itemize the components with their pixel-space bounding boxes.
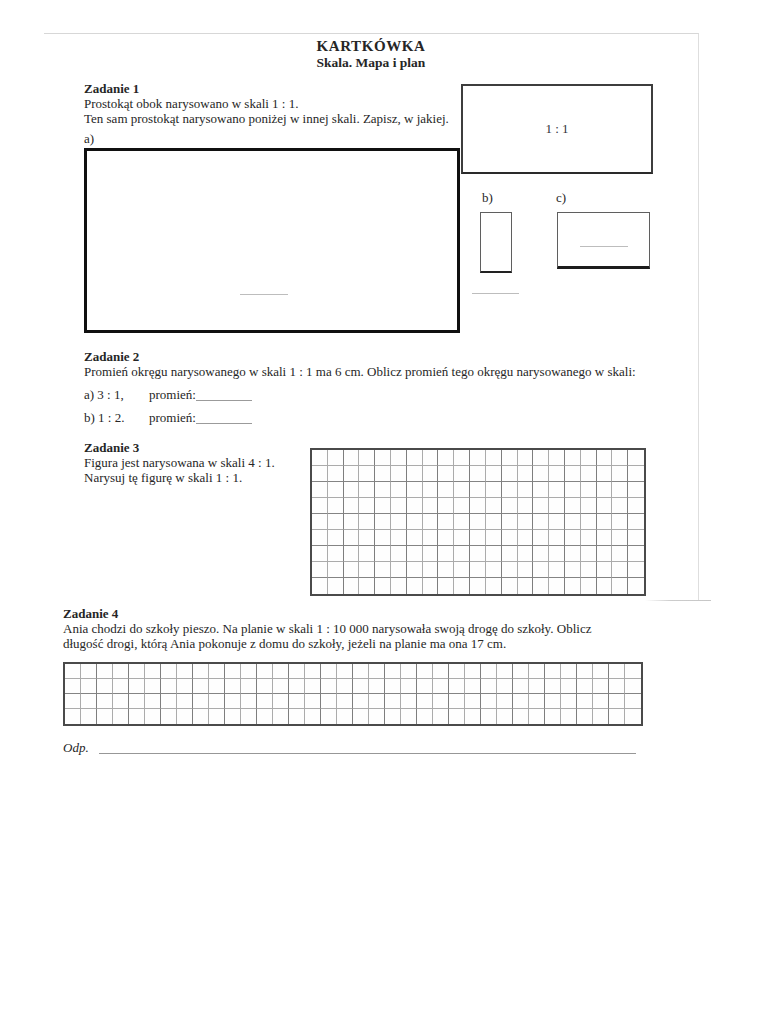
grid-cell	[518, 450, 534, 466]
grid-cell	[628, 482, 644, 498]
grid-cell	[438, 498, 454, 514]
grid-cell	[565, 482, 581, 498]
grid-cell	[533, 530, 549, 546]
page-border-bottom-segment	[645, 600, 711, 601]
task1-label-c: c)	[556, 190, 566, 205]
grid-cell	[593, 694, 609, 709]
grid-cell	[561, 694, 577, 709]
grid-cell	[454, 498, 470, 514]
grid-cell	[565, 514, 581, 530]
task2-intro: Promień okręgu narysowanego w skali 1 : …	[84, 364, 636, 379]
grid-cell	[161, 709, 177, 724]
task2-item-b-blank	[196, 423, 252, 424]
grid-cell	[545, 664, 561, 679]
grid-cell	[581, 530, 597, 546]
grid-cell	[161, 694, 177, 709]
grid-cell	[328, 482, 344, 498]
rectangle-c	[557, 212, 650, 269]
grid-cell	[518, 466, 534, 482]
grid-cell	[597, 578, 613, 594]
grid-cell	[497, 664, 513, 679]
grid-cell	[337, 679, 353, 694]
grid-cell	[305, 709, 321, 724]
grid-cell	[545, 694, 561, 709]
grid-cell	[97, 664, 113, 679]
grid-cell	[113, 664, 129, 679]
grid-cell	[454, 578, 470, 594]
grid-cell	[353, 694, 369, 709]
grid-cell	[470, 514, 486, 530]
grid-cell	[337, 664, 353, 679]
grid-cell	[129, 664, 145, 679]
grid-cell	[65, 679, 81, 694]
grid-cell	[321, 709, 337, 724]
grid-cell	[533, 578, 549, 594]
grid-cell	[145, 709, 161, 724]
grid-cell	[401, 694, 417, 709]
grid-cell	[470, 546, 486, 562]
grid-cell	[502, 482, 518, 498]
grid-cell	[513, 709, 529, 724]
grid-cell	[305, 679, 321, 694]
grid-cell	[449, 664, 465, 679]
grid-cell	[454, 562, 470, 578]
grid-cell	[502, 466, 518, 482]
grid-cell	[312, 466, 328, 482]
grid-cell	[328, 530, 344, 546]
grid-cell	[97, 679, 113, 694]
grid-cell	[502, 450, 518, 466]
grid-cell	[597, 466, 613, 482]
grid-cell	[533, 546, 549, 562]
grid-cell	[177, 709, 193, 724]
grid-cell	[625, 694, 641, 709]
grid-cell	[391, 466, 407, 482]
grid-cell	[312, 530, 328, 546]
grid-cell	[438, 530, 454, 546]
grid-cell	[449, 709, 465, 724]
grid-cell	[257, 679, 273, 694]
grid-cell	[533, 466, 549, 482]
grid-cell	[375, 482, 391, 498]
grid-cell	[145, 679, 161, 694]
grid-cell	[433, 694, 449, 709]
grid-cell	[470, 578, 486, 594]
page-subtitle: Skala. Mapa i plan	[44, 55, 698, 70]
grid-cell	[209, 709, 225, 724]
grid-cell	[65, 694, 81, 709]
grid-cell	[628, 562, 644, 578]
grid-cell	[344, 562, 360, 578]
grid-cell	[449, 679, 465, 694]
task2-item-a-blank	[196, 400, 252, 401]
grid-cell	[449, 694, 465, 709]
grid-cell	[359, 578, 375, 594]
grid-cell	[612, 482, 628, 498]
grid-cell	[549, 530, 565, 546]
grid-cell	[423, 530, 439, 546]
answer-line	[99, 753, 636, 754]
task4-heading: Zadanie 4	[63, 606, 118, 621]
grid-cell	[502, 514, 518, 530]
grid-cell	[417, 709, 433, 724]
grid-cell	[369, 664, 385, 679]
grid-cell	[359, 514, 375, 530]
grid-cell	[465, 709, 481, 724]
grid-cell	[417, 679, 433, 694]
grid-cell	[628, 466, 644, 482]
grid-cell	[225, 664, 241, 679]
grid-cell	[417, 664, 433, 679]
grid-cell	[433, 664, 449, 679]
grid-cell	[609, 694, 625, 709]
grid-cell	[625, 709, 641, 724]
grid-cell	[401, 679, 417, 694]
grid-cell	[423, 546, 439, 562]
grid-cell	[359, 482, 375, 498]
task4-line1: Ania chodzi do szkoły pieszo. Na planie …	[63, 621, 591, 636]
grid-cell	[289, 709, 305, 724]
grid-cell	[565, 562, 581, 578]
grid-cell	[470, 482, 486, 498]
task2-item-a-field-label: promień:	[149, 387, 196, 402]
grid-cell	[561, 679, 577, 694]
grid-cell	[359, 466, 375, 482]
grid-cell	[612, 546, 628, 562]
grid-cell	[359, 450, 375, 466]
grid-cell	[549, 450, 565, 466]
grid-cell	[628, 578, 644, 594]
grid-cell	[593, 679, 609, 694]
grid-cell	[344, 578, 360, 594]
grid-cell	[565, 466, 581, 482]
grid-cell	[328, 450, 344, 466]
grid-cell	[344, 498, 360, 514]
grid-cell	[241, 694, 257, 709]
grid-cell	[273, 709, 289, 724]
grid-cell	[565, 578, 581, 594]
grid-cell	[385, 694, 401, 709]
grid-cell	[486, 546, 502, 562]
scale-reference-box: 1 : 1	[461, 84, 653, 174]
grid-cell	[312, 562, 328, 578]
grid-cell	[581, 482, 597, 498]
grid-cell	[518, 530, 534, 546]
grid-cell	[438, 578, 454, 594]
grid-cell	[513, 664, 529, 679]
grid-cell	[502, 578, 518, 594]
grid-cell	[407, 578, 423, 594]
grid-cell	[407, 530, 423, 546]
grid-cell	[407, 498, 423, 514]
grid-cell	[375, 546, 391, 562]
grid-cell	[375, 498, 391, 514]
grid-cell	[612, 498, 628, 514]
grid-cell	[486, 530, 502, 546]
grid-cell	[593, 664, 609, 679]
grid-cell	[529, 679, 545, 694]
grid-cell	[486, 514, 502, 530]
grid-cell	[513, 694, 529, 709]
grid-cell	[129, 694, 145, 709]
grid-cell	[344, 450, 360, 466]
grid-cell	[597, 530, 613, 546]
grid-cell	[628, 498, 644, 514]
grid-cell	[407, 514, 423, 530]
grid-cell	[577, 679, 593, 694]
grid-cell	[209, 694, 225, 709]
grid-cell	[375, 514, 391, 530]
grid-cell	[344, 482, 360, 498]
grid-cell	[113, 694, 129, 709]
grid-cell	[193, 694, 209, 709]
grid-cell	[385, 679, 401, 694]
grid-cell	[561, 709, 577, 724]
grid-cell	[328, 546, 344, 562]
grid-cell	[312, 578, 328, 594]
grid-cell	[628, 514, 644, 530]
grid-cell	[625, 664, 641, 679]
grid-cell	[470, 562, 486, 578]
grid-cell	[577, 709, 593, 724]
grid-cell	[465, 664, 481, 679]
answer-label: Odp.	[63, 740, 89, 755]
grid-cell	[359, 498, 375, 514]
grid-cell	[625, 679, 641, 694]
grid-cell	[401, 709, 417, 724]
grid-cell	[344, 530, 360, 546]
grid-cell	[549, 514, 565, 530]
grid-cell	[257, 694, 273, 709]
grid-cell	[581, 514, 597, 530]
grid-cell	[161, 679, 177, 694]
grid-cell	[481, 694, 497, 709]
grid-cell	[454, 482, 470, 498]
grid-cell	[628, 546, 644, 562]
grid-cell	[565, 530, 581, 546]
task1-heading: Zadanie 1	[84, 81, 139, 96]
grid-cell	[533, 562, 549, 578]
grid-cell	[193, 664, 209, 679]
grid-cell	[407, 450, 423, 466]
grid-cell	[533, 498, 549, 514]
grid-cell	[81, 679, 97, 694]
grid-cell	[593, 709, 609, 724]
grid-cell	[533, 514, 549, 530]
grid-cell	[486, 466, 502, 482]
task2-item-b-label: b) 1 : 2.	[84, 410, 124, 425]
grid-cell	[81, 709, 97, 724]
grid-cell	[209, 679, 225, 694]
grid-cell	[628, 530, 644, 546]
grid-cell	[513, 679, 529, 694]
grid-cell	[177, 694, 193, 709]
grid-cell	[481, 679, 497, 694]
task4-line2: długość drogi, którą Ania pokonuje z dom…	[63, 636, 506, 651]
grid-cell	[545, 679, 561, 694]
grid-cell	[113, 679, 129, 694]
grid-cell	[565, 546, 581, 562]
grid-cell	[305, 664, 321, 679]
grid-cell	[417, 694, 433, 709]
grid-cell	[438, 514, 454, 530]
grid-cell	[289, 679, 305, 694]
answer-blank-b	[472, 293, 519, 294]
grid-cell	[225, 709, 241, 724]
grid-cell	[486, 562, 502, 578]
grid-cell	[225, 679, 241, 694]
grid-cell	[312, 450, 328, 466]
grid-cell	[423, 514, 439, 530]
grid-cell	[545, 709, 561, 724]
grid-cell	[609, 679, 625, 694]
scale-reference-label: 1 : 1	[545, 121, 568, 137]
grid-cell	[565, 450, 581, 466]
grid-cell	[353, 679, 369, 694]
grid-cell	[391, 450, 407, 466]
grid-cell	[465, 679, 481, 694]
grid-cell	[81, 664, 97, 679]
grid-cell	[502, 498, 518, 514]
grid-cell	[518, 562, 534, 578]
grid-cell	[438, 482, 454, 498]
grid-cell	[502, 530, 518, 546]
grid-cell	[454, 546, 470, 562]
grid-cell	[391, 546, 407, 562]
grid-cell	[225, 694, 241, 709]
grid-cell	[209, 664, 225, 679]
grid-cell	[353, 664, 369, 679]
grid-cell	[391, 498, 407, 514]
grid-cell	[433, 679, 449, 694]
grid-cell	[529, 664, 545, 679]
grid-cell	[581, 546, 597, 562]
grid-cell	[581, 578, 597, 594]
grid-cell	[337, 709, 353, 724]
grid-cell	[312, 546, 328, 562]
grid-cell	[97, 709, 113, 724]
grid-cell	[391, 530, 407, 546]
grid-cell	[612, 578, 628, 594]
grid-cell	[597, 514, 613, 530]
grid-cell	[518, 482, 534, 498]
grid-cell	[359, 562, 375, 578]
grid-cell	[401, 664, 417, 679]
grid-cell	[375, 530, 391, 546]
grid-cell	[549, 562, 565, 578]
grid-cell	[438, 562, 454, 578]
grid-cell	[565, 498, 581, 514]
grid-cell	[597, 546, 613, 562]
grid-cell	[129, 709, 145, 724]
worksheet-page: KARTKÓWKA Skala. Mapa i plan Zadanie 1 P…	[0, 0, 768, 1024]
grid-cell	[257, 664, 273, 679]
grid-cell	[581, 562, 597, 578]
task1-label-a: a)	[84, 131, 94, 146]
grid-cell	[385, 664, 401, 679]
grid-cell	[161, 664, 177, 679]
grid-cell	[81, 694, 97, 709]
grid-cell	[470, 498, 486, 514]
grid-cell	[321, 694, 337, 709]
grid-cell	[289, 664, 305, 679]
grid-cell	[518, 578, 534, 594]
grid-cell	[486, 482, 502, 498]
grid-cell	[497, 709, 513, 724]
grid-cell	[328, 562, 344, 578]
grid-cell	[273, 664, 289, 679]
grid-cell	[533, 482, 549, 498]
grid-cell	[289, 694, 305, 709]
task2-heading: Zadanie 2	[84, 349, 139, 364]
grid-cell	[391, 482, 407, 498]
grid-cell	[65, 709, 81, 724]
grid-cell	[359, 530, 375, 546]
grid-cell	[486, 450, 502, 466]
grid-cell	[177, 664, 193, 679]
rectangle-a	[84, 148, 460, 333]
grid-cell	[423, 578, 439, 594]
grid-cell	[193, 709, 209, 724]
grid-cell	[465, 694, 481, 709]
grid-cell	[65, 664, 81, 679]
task1-line1: Prostokąt obok narysowano w skali 1 : 1.	[84, 96, 298, 111]
task2-item-a-label: a) 3 : 1,	[84, 387, 124, 402]
grid-cell	[328, 466, 344, 482]
grid-cell	[454, 530, 470, 546]
grid-cell	[407, 562, 423, 578]
grid-cell	[628, 450, 644, 466]
grid-cell	[312, 498, 328, 514]
grid-cell	[241, 679, 257, 694]
grid-cell	[533, 450, 549, 466]
grid-cell	[549, 578, 565, 594]
grid-cell	[609, 664, 625, 679]
grid-cell	[549, 466, 565, 482]
grid-cell	[423, 562, 439, 578]
grid-cell	[337, 694, 353, 709]
grid-cell	[145, 664, 161, 679]
grid-cell	[129, 679, 145, 694]
grid-cell	[423, 450, 439, 466]
grid-cell	[518, 514, 534, 530]
grid-cell	[597, 482, 613, 498]
grid-cell	[470, 530, 486, 546]
grid-cell	[612, 450, 628, 466]
grid-cell	[470, 466, 486, 482]
grid-cell	[486, 498, 502, 514]
grid-cell	[518, 546, 534, 562]
grid-cell	[305, 694, 321, 709]
grid-cell	[470, 450, 486, 466]
grid-cell	[273, 679, 289, 694]
grid-cell	[391, 562, 407, 578]
grid-cell	[344, 514, 360, 530]
grid-cell	[438, 450, 454, 466]
grid-cell	[353, 709, 369, 724]
grid-cell	[328, 514, 344, 530]
task4-working-grid	[63, 662, 643, 726]
grid-cell	[257, 709, 273, 724]
grid-cell	[407, 482, 423, 498]
grid-cell	[581, 466, 597, 482]
grid-cell	[502, 562, 518, 578]
answer-blank-c	[580, 246, 628, 247]
grid-cell	[529, 694, 545, 709]
grid-cell	[438, 466, 454, 482]
grid-cell	[385, 709, 401, 724]
page-title: KARTKÓWKA	[44, 38, 698, 54]
